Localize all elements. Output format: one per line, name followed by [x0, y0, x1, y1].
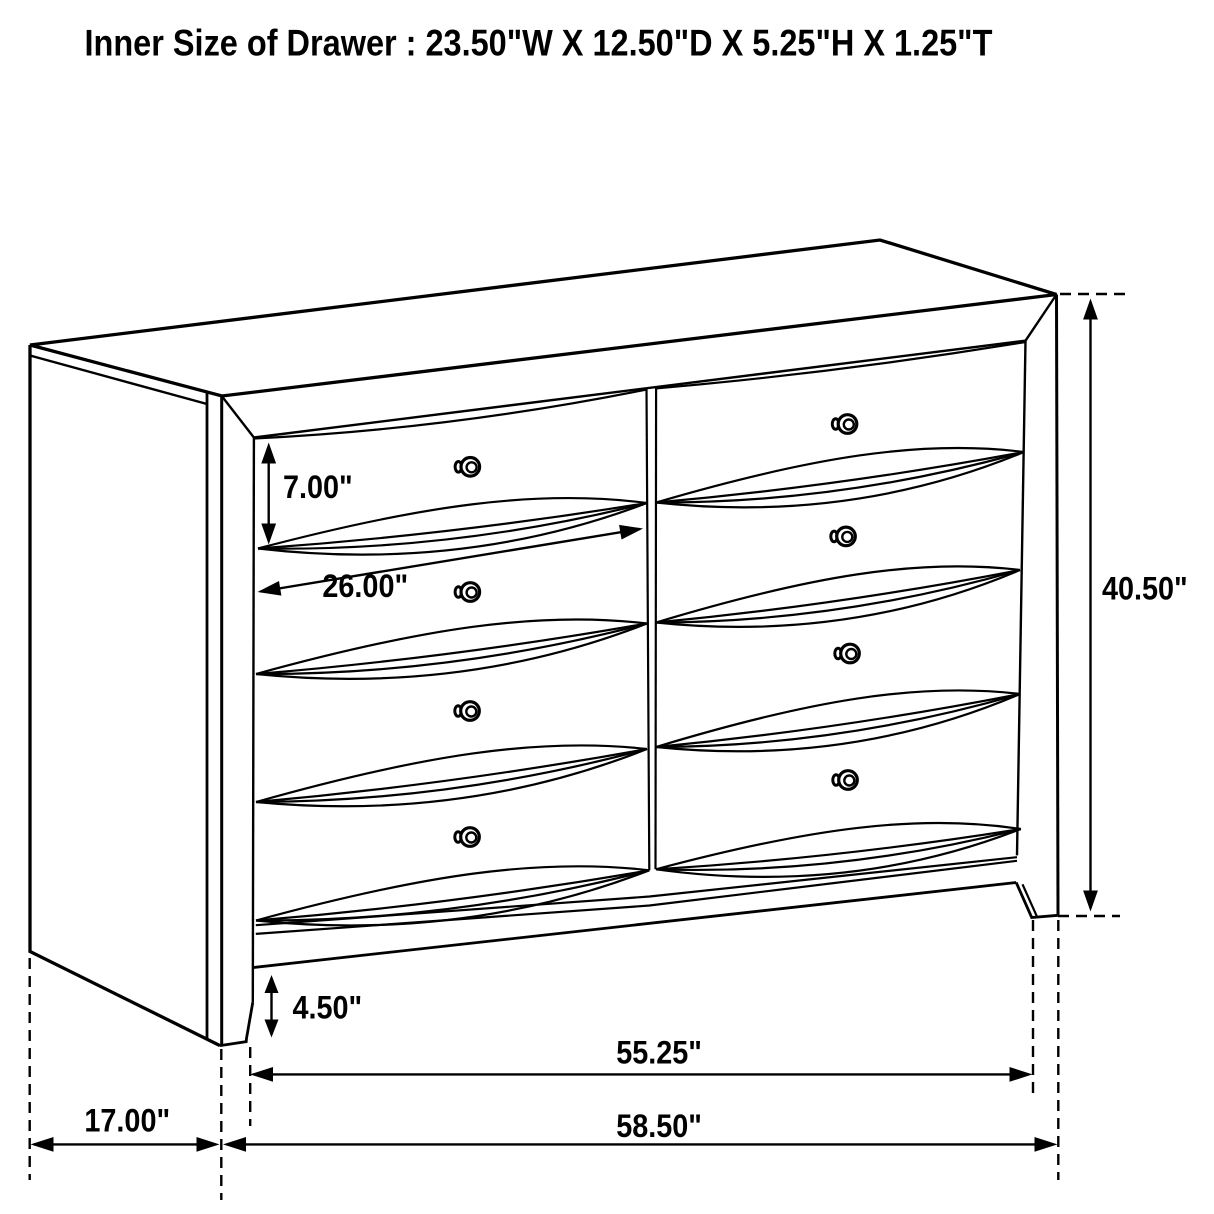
svg-text:58.50": 58.50"	[616, 1108, 702, 1144]
svg-text:55.25": 55.25"	[616, 1035, 702, 1071]
svg-text:7.00": 7.00"	[283, 470, 353, 506]
svg-text:26.00": 26.00"	[322, 569, 408, 605]
svg-text:40.50": 40.50"	[1102, 571, 1188, 607]
svg-text:17.00": 17.00"	[84, 1103, 170, 1139]
svg-text:4.50": 4.50"	[293, 990, 363, 1026]
svg-text:Inner Size of Drawer : 23.50"W: Inner Size of Drawer : 23.50"W X 12.50"D…	[85, 23, 993, 64]
